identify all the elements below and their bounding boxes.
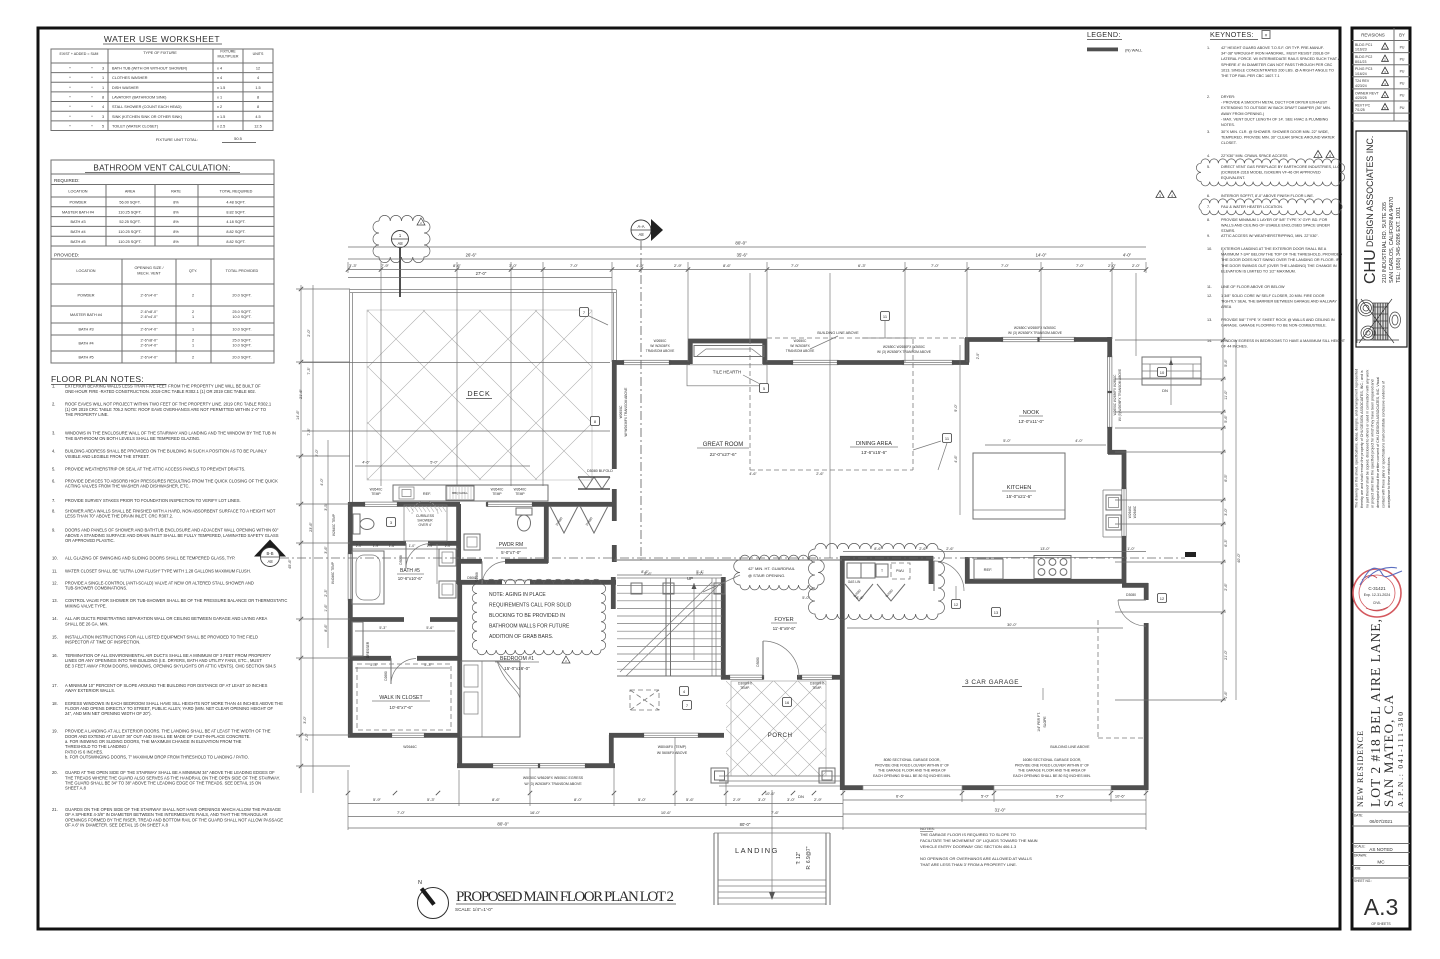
svg-text:PROVIDE 5/8" TYPE 'X' SHEET RO: PROVIDE 5/8" TYPE 'X' SHEET ROCK @ WALLS…: [1221, 318, 1335, 322]
svg-text:D3080FX: D3080FX: [810, 682, 825, 686]
svg-text:14.: 14.: [52, 616, 58, 621]
svg-text:30"X MIN. CLR. @ SHOWER. SHOWE: 30"X MIN. CLR. @ SHOWER. SHOWER DOOR MIN…: [1221, 130, 1329, 134]
svg-text:3'-0": 3'-0": [509, 263, 518, 268]
svg-text:4'-6": 4'-6": [954, 455, 958, 463]
svg-text:W2650C: W2650C: [654, 339, 667, 343]
svg-text:NOTE: AGING IN PLACE: NOTE: AGING IN PLACE: [489, 592, 546, 598]
svg-text:DECK: DECK: [467, 389, 490, 398]
svg-text:2.: 2.: [1207, 95, 1210, 99]
svg-text:2'-0": 2'-0": [315, 449, 319, 457]
svg-text:80'-0": 80'-0": [497, 822, 509, 827]
svg-text:1: 1: [102, 86, 104, 90]
svg-text:THE BATHROOM ON BOTH LEVELS SH: THE BATHROOM ON BOTH LEVELS SHALL BE TEM…: [65, 436, 200, 441]
svg-text:3'-0": 3'-0": [1224, 508, 1228, 516]
svg-text:3: 3: [1317, 154, 1319, 158]
svg-text:3'-6": 3'-6": [324, 546, 328, 554]
svg-text:7'-3": 7'-3": [307, 428, 311, 436]
svg-text:6'-5": 6'-5": [1224, 474, 1228, 482]
svg-text:1'-0": 1'-0": [1127, 547, 1135, 551]
svg-text:PROPOSED MAIN FLOOR PLAN LOT 2: PROPOSED MAIN FLOOR PLAN LOT 2: [456, 889, 674, 905]
svg-text:TYPE OF FIXTURE: TYPE OF FIXTURE: [143, 51, 177, 55]
svg-text:8.: 8.: [52, 509, 55, 514]
svg-text:4'-9": 4'-9": [636, 263, 645, 268]
svg-text:7'-3": 7'-3": [307, 367, 311, 375]
svg-text:10.0 SQFT.: 10.0 SQFT.: [232, 344, 251, 348]
svg-text:SINK (KITCHEN SINK OR OTHER SI: SINK (KITCHEN SINK OR OTHER SINK): [112, 115, 183, 119]
svg-text:AREA: AREA: [1221, 305, 1232, 309]
svg-text:FACILITATE THE MOVEMENT OF LIQ: FACILITATE THE MOVEMENT OF LIQUIDS TOWAR…: [920, 838, 1038, 843]
svg-text:1/16/23: 1/16/23: [1355, 48, 1367, 52]
svg-text:80'-0": 80'-0": [735, 241, 747, 246]
svg-text:110.25 SQFT.: 110.25 SQFT.: [118, 210, 141, 214]
svg-text:TEMPERED. PROVIDE MIN. 30" CLE: TEMPERED. PROVIDE MIN. 30" CLEAR SPACE A…: [1221, 136, 1335, 140]
svg-text:FAU & WATER HEATER LOCATION.: FAU & WATER HEATER LOCATION.: [1221, 205, 1283, 209]
svg-text:W/ (3) W2636FX TRANSOM ABOVE: W/ (3) W2636FX TRANSOM ABOVE: [1008, 331, 1063, 335]
svg-text:GREAT ROOM: GREAT ROOM: [703, 442, 743, 448]
svg-text:NOOK: NOOK: [1023, 410, 1040, 416]
svg-text:CLOSET.: CLOSET.: [1221, 141, 1237, 145]
svg-text:13.: 13.: [52, 598, 58, 603]
svg-text:FIXTURE UNIT TOTAL:: FIXTURE UNIT TOTAL:: [156, 137, 198, 142]
svg-text:23'-6": 23'-6": [309, 522, 313, 532]
svg-text:2'-0": 2'-0": [356, 544, 363, 548]
svg-text:4: 4: [1171, 194, 1173, 198]
svg-text:W/ W2636FX TRANSOM ABOVE: W/ W2636FX TRANSOM ABOVE: [624, 387, 628, 437]
svg-text:14'-6": 14'-6": [296, 410, 300, 420]
svg-text:26'-6": 26'-6": [466, 253, 477, 258]
svg-text:CIVIL: CIVIL: [1373, 601, 1381, 605]
svg-text:25.0 SQFT.: 25.0 SQFT.: [232, 310, 251, 314]
svg-text:- PROVIDE A SMOOTH METAL DUCT: - PROVIDE A SMOOTH METAL DUCT FOR DRYER …: [1221, 101, 1328, 105]
svg-text:8.: 8.: [1207, 218, 1210, 222]
svg-text:42" MIN. HT. GUARDRAIL: 42" MIN. HT. GUARDRAIL: [748, 566, 796, 571]
svg-text:4.48 SQFT.: 4.48 SQFT.: [226, 201, 245, 205]
svg-text:5'-0"x7'-0": 5'-0"x7'-0": [501, 550, 521, 555]
svg-text:MIXING VALVE TYPE.: MIXING VALVE TYPE.: [65, 603, 107, 608]
svg-text:4.: 4.: [1207, 154, 1210, 158]
svg-text:AWAY FROM OPENING.): AWAY FROM OPENING.): [1221, 112, 1265, 116]
svg-text:80'-0": 80'-0": [740, 822, 751, 827]
svg-text:thereby are and shall remain t: thereby are and shall remain the propert…: [1360, 370, 1364, 508]
svg-text:8'-6": 8'-6": [874, 547, 882, 551]
svg-text:PU: PU: [1400, 57, 1405, 61]
svg-text:8%: 8%: [173, 210, 179, 214]
svg-text:3.: 3.: [52, 431, 55, 436]
svg-text:CURBLESS: CURBLESS: [416, 514, 435, 518]
svg-text:7'-0": 7'-0": [397, 810, 406, 815]
svg-text:5'-3": 5'-3": [427, 797, 436, 802]
svg-text:7/1/25: 7/1/25: [1355, 108, 1365, 112]
svg-text:5'-6": 5'-6": [1224, 359, 1228, 367]
svg-text:11'-0": 11'-0": [1224, 390, 1228, 400]
svg-text:4'-6": 4'-6": [749, 472, 757, 476]
svg-text:17.: 17.: [52, 683, 58, 688]
svg-text:2: 2: [192, 310, 194, 314]
svg-text:BEDROOM #1: BEDROOM #1: [500, 656, 534, 662]
svg-text:2'-6"x8'-0": 2'-6"x8'-0": [140, 339, 158, 343]
svg-text:PU: PU: [1400, 82, 1405, 86]
svg-text:x 1: x 1: [217, 96, 222, 100]
svg-text:FLOOR PLAN NOTES:: FLOOR PLAN NOTES:: [51, 374, 144, 384]
svg-text:A8: A8: [397, 241, 403, 246]
svg-text:4'-6": 4'-6": [362, 461, 370, 465]
svg-text:1'-6": 1'-6": [389, 544, 396, 548]
svg-text:PROVIDE SURVEY STAKES PRIOR TO: PROVIDE SURVEY STAKES PRIOR TO FOUNDATIO…: [65, 498, 241, 503]
svg-text:Exp. 12-31-2024: Exp. 12-31-2024: [1364, 593, 1391, 597]
svg-text:20.: 20.: [52, 770, 58, 775]
svg-text:RATE: RATE: [171, 190, 181, 194]
svg-text:PU: PU: [1400, 94, 1405, 98]
svg-text:TOILET (WATER CLOSET): TOILET (WATER CLOSET): [112, 124, 159, 128]
svg-text:The drawing on this sheet, spe: The drawing on this sheet, specification…: [1355, 369, 1359, 508]
svg-text:W2650C: W2650C: [794, 339, 807, 343]
svg-text:4.: 4.: [52, 449, 55, 454]
svg-text:PROVIDE ONE FIXED LOUVER WITHI: PROVIDE ONE FIXED LOUVER WITHIN 6" OF: [875, 763, 949, 767]
svg-text:W2650C W2636FX W2650C: W2650C W2636FX W2650C: [1113, 374, 1117, 415]
svg-text:PWU: PWU: [896, 569, 904, 573]
svg-text:10.: 10.: [1207, 247, 1212, 251]
svg-text:45'-6": 45'-6": [288, 559, 292, 569]
svg-text:5'-6": 5'-6": [686, 797, 695, 802]
svg-text:EXTERIOR LANDING AT THE EXTERI: EXTERIOR LANDING AT THE EXTERIOR DOOR SH…: [1221, 247, 1327, 251]
svg-text:EACH OPENING SHALL BE 80 SQ IN: EACH OPENING SHALL BE 80 SQ INCHES MIN.: [1013, 774, 1091, 778]
svg-text:50.5: 50.5: [234, 136, 243, 141]
svg-text:8%: 8%: [173, 201, 179, 205]
svg-text:5'-0": 5'-0": [1003, 439, 1011, 443]
svg-text:5'-0": 5'-0": [981, 794, 990, 799]
svg-text:W2640C: W2640C: [370, 488, 383, 492]
svg-text:WATER USE WORKSHEET: WATER USE WORKSHEET: [104, 34, 220, 44]
svg-text:16: 16: [785, 700, 790, 705]
svg-text:13.: 13.: [1207, 318, 1212, 322]
svg-text:PROVIDE MINIMUM 1 LAYER OF 5/8: PROVIDE MINIMUM 1 LAYER OF 5/8" TYPE 'X'…: [1221, 218, 1328, 222]
svg-text:TRANSOM ABOVE: TRANSOM ABOVE: [786, 349, 815, 353]
svg-text:8'-0": 8'-0": [574, 797, 583, 802]
svg-text:2'-0": 2'-0": [976, 352, 980, 359]
svg-text:MULTIPLIER: MULTIPLIER: [218, 55, 239, 59]
svg-text:1'-0": 1'-0": [409, 544, 416, 548]
svg-text:21'-6": 21'-6": [299, 389, 303, 399]
svg-text:BATH TUB (WITH OR WITHOUT SHOW: BATH TUB (WITH OR WITHOUT SHOWER): [112, 67, 188, 71]
svg-text:4'-0": 4'-0": [1123, 253, 1132, 258]
svg-text:12: 12: [954, 602, 959, 607]
svg-text:W2646C: W2646C: [1128, 505, 1132, 518]
svg-text:12: 12: [256, 67, 260, 71]
svg-text:15'-0"x16'-0": 15'-0"x16'-0": [504, 666, 530, 671]
svg-text:6.: 6.: [52, 479, 55, 484]
svg-text:5'-6": 5'-6": [1224, 415, 1228, 423]
svg-text:6'-3": 6'-3": [1224, 539, 1228, 547]
svg-text:14.: 14.: [1207, 339, 1212, 343]
svg-text:3 CAR GARAGE: 3 CAR GARAGE: [965, 679, 1019, 686]
svg-text:QTY.: QTY.: [189, 269, 197, 273]
svg-text:T: 12": T: 12": [796, 851, 802, 864]
svg-text:OF 44 INCHES.: OF 44 INCHES.: [1221, 345, 1248, 349]
svg-text:T24 REV: T24 REV: [1355, 79, 1370, 83]
svg-text:MC: MC: [1377, 860, 1385, 865]
svg-text:1'-9": 1'-9": [427, 544, 434, 548]
svg-text:31'-0": 31'-0": [995, 808, 1006, 813]
svg-text:13'-6"x15'-6": 13'-6"x15'-6": [861, 450, 887, 455]
svg-text:SAN CARLOS, CALIFORNIA 94070: SAN CARLOS, CALIFORNIA 94070: [1389, 197, 1395, 283]
svg-text:TRANSOM ABOVE: TRANSOM ABOVE: [646, 349, 675, 353]
svg-text:DINING AREA: DINING AREA: [856, 441, 892, 447]
svg-text:8'-6": 8'-6": [492, 797, 501, 802]
svg-text:2'-3": 2'-3": [324, 589, 328, 597]
svg-text:13'-0"x11'-0": 13'-0"x11'-0": [1018, 419, 1044, 424]
svg-text:OVER 4': OVER 4': [418, 523, 431, 527]
svg-text:JOB:: JOB:: [1354, 867, 1361, 871]
svg-text:FOYER: FOYER: [774, 617, 793, 623]
svg-text:4.5: 4.5: [255, 115, 260, 119]
svg-text:W2640C TEMP: W2640C TEMP: [332, 514, 336, 536]
svg-text:2'-6": 2'-6": [1224, 583, 1228, 591]
svg-text:7'-6": 7'-6": [771, 810, 780, 815]
svg-text:1'-9": 1'-9": [373, 544, 380, 548]
svg-text:3'-0": 3'-0": [787, 797, 796, 802]
svg-text:5: 5: [102, 124, 104, 128]
svg-text:12.: 12.: [1207, 294, 1212, 298]
svg-text:GAS LIN: GAS LIN: [848, 580, 861, 584]
svg-text:10'-6": 10'-6": [765, 791, 776, 796]
svg-text:W/ (3) W2636FX TRANSOM ABOVE: W/ (3) W2636FX TRANSOM ABOVE: [1118, 369, 1122, 421]
svg-text:5'-0": 5'-0": [430, 461, 438, 465]
svg-text:42" HEIGHT GUARD ABOVE T.O.S.F: 42" HEIGHT GUARD ABOVE T.O.S.F. OR TYP. …: [1221, 46, 1324, 50]
svg-text:8'-6": 8'-6": [723, 263, 732, 268]
svg-text:THE GARAGE FLOOR AND THE AREA: THE GARAGE FLOOR AND THE AREA OF: [878, 769, 946, 773]
svg-text:10'-6"x7'-6": 10'-6"x7'-6": [389, 705, 413, 710]
svg-text:2'-0": 2'-0": [445, 544, 452, 548]
svg-text:8%: 8%: [173, 220, 179, 224]
svg-text:5'-0": 5'-0": [1056, 794, 1065, 799]
svg-text:PROVIDE ONE FIXED LOUVER WITHI: PROVIDE ONE FIXED LOUVER WITHIN 6" OF: [1015, 763, 1089, 767]
svg-text:1'-6": 1'-6": [1224, 691, 1228, 699]
svg-text:POWDER: POWDER: [77, 293, 94, 297]
svg-text:PLNG PC3: PLNG PC3: [1355, 67, 1372, 71]
svg-text:56.00 SQFT.: 56.00 SQFT.: [119, 201, 140, 205]
svg-text:52.25 SQFT.: 52.25 SQFT.: [119, 220, 140, 224]
svg-text:POWDER: POWDER: [69, 201, 86, 205]
svg-text:12.: 12.: [52, 580, 58, 585]
svg-text:1.: 1.: [52, 384, 55, 389]
svg-text:x 2: x 2: [217, 105, 222, 109]
svg-text:7'-0": 7'-0": [570, 263, 579, 268]
svg-text:1: 1: [192, 315, 194, 319]
svg-text:BBQ GRILL: BBQ GRILL: [452, 491, 468, 495]
svg-text:110.25 SQFT.: 110.25 SQFT.: [118, 240, 141, 244]
svg-text:2: 2: [192, 293, 194, 297]
svg-text:PU: PU: [1400, 106, 1405, 110]
svg-text:5'-6": 5'-6": [426, 626, 434, 630]
svg-text:INSPECTOR AT TIME OF INSPECTIO: INSPECTOR AT TIME OF INSPECTION.: [65, 640, 140, 645]
svg-text:2'-0": 2'-0": [305, 733, 309, 741]
svg-text:A-A: A-A: [638, 224, 645, 229]
svg-text:A.3: A.3: [1364, 894, 1399, 920]
svg-text:TOTAL PROVIDED: TOTAL PROVIDED: [226, 269, 259, 273]
svg-text:1/16/24: 1/16/24: [1355, 72, 1367, 76]
svg-text:CHU: CHU: [1362, 249, 1379, 284]
svg-text:MECH. VENT: MECH. VENT: [137, 272, 161, 276]
svg-text:BATH #5: BATH #5: [70, 240, 85, 244]
svg-text:BLOCKING TO BE PROVIDED IN: BLOCKING TO BE PROVIDED IN: [489, 613, 565, 619]
svg-text:12: 12: [1160, 596, 1165, 601]
svg-text:VEHICLE ENTRY DOORWAY CBC SECT: VEHICLE ENTRY DOORWAY CBC SECTION 406.1.…: [920, 844, 1017, 849]
svg-text:OF A 6" IN DIAMETER. SEE DETAI: OF A 6" IN DIAMETER. SEE DETAIL 15 ON SH…: [65, 823, 169, 828]
svg-text:W2640C: W2640C: [491, 488, 504, 492]
svg-text:2'-6": 2'-6": [946, 547, 954, 551]
svg-text:ATTIC ACCESS W/ WEATHERSTRIPPI: ATTIC ACCESS W/ WEATHERSTRIPPING, MIN. 2…: [1221, 234, 1319, 238]
svg-text:21.: 21.: [52, 807, 58, 812]
svg-text:A.P.N.: 041-111-380: A.P.N.: 041-111-380: [1396, 712, 1405, 807]
svg-text:DRAWN:: DRAWN:: [1354, 854, 1367, 858]
svg-text:4/20/25: 4/20/25: [1355, 96, 1367, 100]
svg-text:WALK IN CLOSET: WALK IN CLOSET: [379, 695, 423, 701]
svg-text:W2646C: W2646C: [1133, 505, 1137, 518]
svg-text:25.0 SQFT.: 25.0 SQFT.: [232, 339, 251, 343]
svg-text:2'-6": 2'-6": [816, 472, 824, 476]
svg-text:8: 8: [257, 96, 259, 100]
svg-text:x 2.5: x 2.5: [217, 124, 225, 128]
svg-text:R: 6.9@7": R: 6.9@7": [806, 846, 812, 869]
svg-text:ADDITION OF GRAB BARS.: ADDITION OF GRAB BARS.: [489, 634, 553, 640]
svg-text:OWNER REVT: OWNER REVT: [1355, 91, 1380, 95]
svg-text:BATH #4: BATH #4: [78, 341, 93, 345]
svg-text:3'-0": 3'-0": [303, 716, 307, 724]
svg-text:D5080 BI-FOLD: D5080 BI-FOLD: [587, 469, 613, 473]
svg-text:W/ W2636FX: W/ W2636FX: [650, 344, 670, 348]
svg-text:TEL: (650) 345-9286 EXT. 1001: TEL: (650) 345-9286 EXT. 1001: [1396, 207, 1402, 283]
svg-text:BLDG PC1: BLDG PC1: [1355, 43, 1372, 47]
svg-text:16.: 16.: [52, 653, 58, 658]
svg-text:THAT ARE LESS THAN 3' FROM A P: THAT ARE LESS THAN 3' FROM A PROPERTY LI…: [920, 862, 1017, 867]
svg-text:DATE:: DATE:: [1354, 814, 1363, 818]
svg-text:SCALE:: SCALE:: [1354, 845, 1365, 849]
svg-text:9.: 9.: [52, 528, 55, 533]
svg-text:ALL GLAZING OF SWINGING AND SL: ALL GLAZING OF SWINGING AND SLIDING DOOR…: [65, 556, 235, 561]
svg-text:3.: 3.: [1207, 130, 1210, 134]
svg-text:ACTING VALVES FROM THE WASHER: ACTING VALVES FROM THE WASHER AND DISHWA…: [65, 484, 190, 489]
svg-text:20.0 SQFT.: 20.0 SQFT.: [232, 355, 251, 359]
svg-text:PORCH: PORCH: [768, 732, 793, 739]
svg-text:8'-6": 8'-6": [856, 596, 864, 600]
svg-text:SHEET NO.:: SHEET NO.:: [1354, 879, 1372, 883]
svg-text:FIXTURE: FIXTURE: [220, 50, 236, 54]
svg-text:13: 13: [994, 610, 999, 615]
svg-text:10.0 SQFT.: 10.0 SQFT.: [232, 327, 251, 331]
svg-text:D2680: D2680: [384, 671, 388, 681]
svg-text:A8: A8: [267, 559, 273, 564]
svg-text:5'-0": 5'-0": [638, 797, 647, 802]
svg-text:PU: PU: [1400, 45, 1405, 49]
svg-text:10'-6": 10'-6": [1115, 794, 1126, 799]
svg-text:TILE HEARTH: TILE HEARTH: [713, 370, 741, 375]
svg-text:LINE OF FLOOR ABOVE OR BELOW: LINE OF FLOOR ABOVE OR BELOW: [1221, 285, 1285, 289]
svg-text:THE DOOR DOES NOT SWING OVER T: THE DOOR DOES NOT SWING OVER THE LANDING…: [1221, 258, 1340, 262]
svg-text:- MAX. VENT DUCT LENGTH OF 14': - MAX. VENT DUCT LENGTH OF 14'. SEE HVAC…: [1221, 117, 1328, 121]
svg-text:4.18 SQFT.: 4.18 SQFT.: [226, 220, 245, 224]
svg-text:7'-0": 7'-0": [791, 263, 800, 268]
svg-text:SLOPE: SLOPE: [1043, 716, 1047, 728]
svg-text:B-B: B-B: [267, 551, 274, 556]
svg-text:NOTES:: NOTES:: [920, 826, 935, 831]
svg-text:11'-6"x9'-6": 11'-6"x9'-6": [773, 626, 796, 631]
svg-text:VISIBLE AND LEGIBLE FROM THE S: VISIBLE AND LEGIBLE FROM THE STREET.: [65, 454, 150, 459]
svg-text:KEYNOTES:: KEYNOTES:: [1210, 30, 1254, 39]
svg-text:W5050C W5626FX W5050C EGRESS: W5050C W5626FX W5050C EGRESS: [523, 776, 584, 780]
svg-text:THE TOP RAIL PER CBC 1607.7.1: THE TOP RAIL PER CBC 1607.7.1: [1221, 74, 1280, 78]
svg-text:STAIRS.: STAIRS.: [1221, 229, 1235, 233]
svg-text:x 4: x 4: [217, 76, 222, 80]
svg-text:acceptance to these restrictio: acceptance to these restrictions.: [1387, 456, 1391, 508]
svg-text:40'-0": 40'-0": [1237, 553, 1241, 563]
svg-text:LAVATORY (BATHROOM SINK): LAVATORY (BATHROOM SINK): [112, 96, 167, 100]
svg-text:REVISIONS: REVISIONS: [1361, 33, 1385, 38]
svg-text:18.: 18.: [52, 701, 58, 706]
svg-text:5'-3": 5'-3": [424, 663, 432, 667]
svg-text:PWDR RM: PWDR RM: [499, 542, 523, 548]
svg-text:19.: 19.: [52, 729, 58, 734]
svg-text:15'-0"x21'-6": 15'-0"x21'-6": [1006, 494, 1032, 499]
svg-text:10: 10: [1160, 370, 1165, 375]
svg-text:developed without the written: developed without the written consent of…: [1376, 377, 1380, 508]
svg-text:contact with these plans or sp: contact with these plans or specificatio…: [1382, 381, 1386, 508]
svg-text:or project other than the spec: or project other than the specified proj…: [1371, 380, 1375, 508]
svg-text:no part thereof shall be copie: no part thereof shall be copied, disclos…: [1365, 370, 1369, 508]
svg-text:SCALE: 1/4"=1'-0": SCALE: 1/4"=1'-0": [455, 907, 493, 912]
svg-text:110.25 SQFT.: 110.25 SQFT.: [118, 230, 141, 234]
svg-text:06/07/2021: 06/07/2021: [1370, 819, 1393, 824]
svg-text:THE GARAGE FLOOR AND THE AREA: THE GARAGE FLOOR AND THE AREA OF: [1018, 769, 1086, 773]
svg-text:TEMP.: TEMP.: [740, 686, 750, 690]
svg-text:8'-6": 8'-6": [641, 570, 649, 574]
svg-text:BY: BY: [1399, 33, 1405, 38]
svg-text:8: 8: [102, 96, 104, 100]
svg-text:8.82 SQFT.: 8.82 SQFT.: [226, 230, 245, 234]
svg-text:12.5: 12.5: [254, 124, 261, 128]
svg-text:GARAGE. GARAGE FLOORING TO BE: GARAGE. GARAGE FLOORING TO BE NON-COMBUS…: [1221, 324, 1327, 328]
svg-text:3: 3: [1159, 194, 1161, 198]
svg-text:W2640C: W2640C: [514, 488, 527, 492]
svg-text:2'-9": 2'-9": [733, 797, 742, 802]
svg-text:TUB-SHOWER COMBINATIONS.: TUB-SHOWER COMBINATIONS.: [65, 586, 127, 591]
svg-text:10.: 10.: [52, 556, 58, 561]
svg-text:D3080FX: D3080FX: [738, 682, 753, 686]
svg-text:9'-0": 9'-0": [954, 404, 958, 412]
svg-text:WINDOW EGRESS IN BEDROOMS TO H: WINDOW EGRESS IN BEDROOMS TO HAVE A MAXI…: [1221, 339, 1346, 343]
svg-text:4: 4: [1329, 154, 1331, 158]
svg-text:x 4: x 4: [217, 67, 222, 71]
svg-text:14'-0": 14'-0": [1036, 253, 1047, 258]
svg-text:2: 2: [192, 339, 194, 343]
svg-text:THE GUARD SHALL BE 34" TO 38": THE GUARD SHALL BE 34" TO 38" ABOVE THE …: [65, 781, 261, 786]
svg-text:2'-9": 2'-9": [674, 263, 683, 268]
svg-text:TOTAL REQUIRED: TOTAL REQUIRED: [220, 190, 253, 194]
svg-text:EXIST + ADDED = SUM: EXIST + ADDED = SUM: [60, 52, 99, 56]
svg-text:NO OPENINGS OR OVERHANGS ARE A: NO OPENINGS OR OVERHANGS ARE ALLOWED AT …: [920, 856, 1032, 861]
svg-text:DRESSER: DRESSER: [366, 641, 370, 658]
svg-text:6.: 6.: [1207, 194, 1210, 198]
svg-text:NEW RESIDENCE: NEW RESIDENCE: [1356, 731, 1365, 807]
svg-text:C-31421: C-31421: [1368, 586, 1386, 591]
svg-text:REQUIRED:: REQUIRED:: [54, 178, 80, 183]
svg-text:2'-6"x4'-0": 2'-6"x4'-0": [140, 293, 158, 297]
svg-text:NOTES.: NOTES.: [1221, 123, 1235, 127]
svg-text:30'-0": 30'-0": [1007, 623, 1017, 627]
svg-text:1.5: 1.5: [255, 86, 260, 90]
svg-text:PROVIDE WEATHERSTRIP OR SEAL A: PROVIDE WEATHERSTRIP OR SEAL AT THE ATTI…: [65, 467, 245, 472]
svg-text:ONE-HOUR FIRE -RATED CONSTRUCT: ONE-HOUR FIRE -RATED CONSTRUCTION. 2019 …: [65, 389, 256, 394]
svg-text:5.: 5.: [1207, 165, 1210, 169]
